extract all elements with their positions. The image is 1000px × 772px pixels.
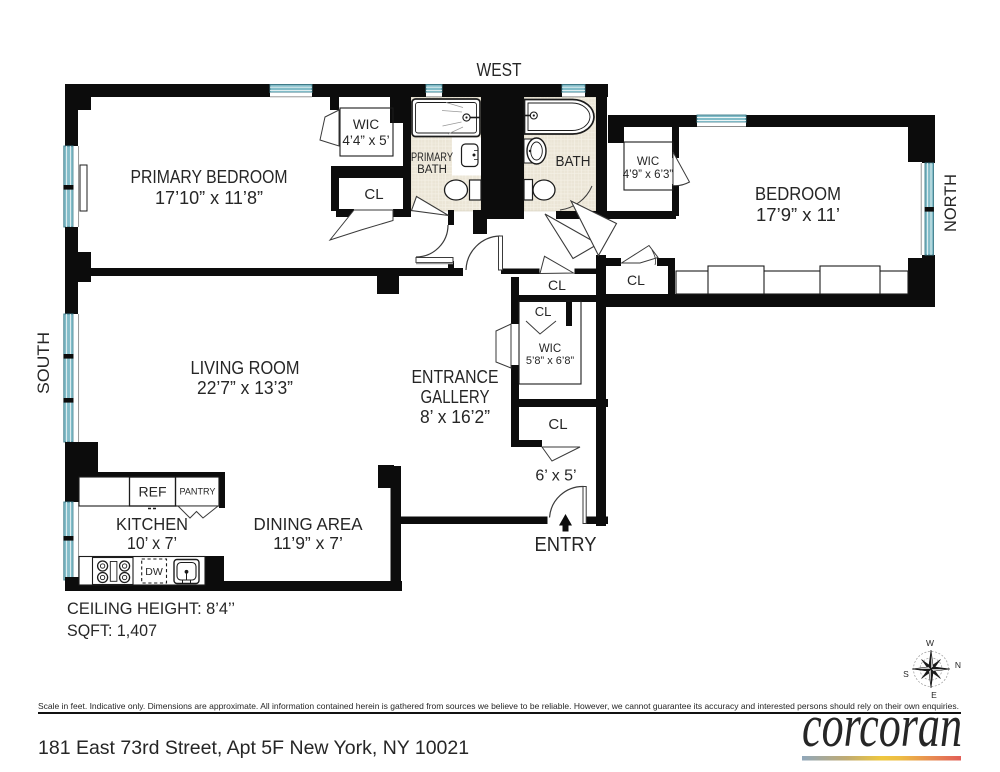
svg-text:4’9” x 6’3”: 4’9” x 6’3” (623, 169, 674, 181)
svg-text:PANTRY: PANTRY (180, 487, 217, 498)
svg-text:REF: REF (139, 484, 167, 500)
svg-text:4’4” x 5’: 4’4” x 5’ (342, 133, 389, 148)
svg-text:ENTRY: ENTRY (535, 534, 597, 556)
svg-text:DW: DW (145, 566, 163, 578)
svg-text:BATH: BATH (417, 164, 447, 176)
svg-text:WEST: WEST (477, 59, 522, 80)
svg-text:KITCHEN: KITCHEN (116, 514, 188, 534)
svg-text:8’ x 16’2”: 8’ x 16’2” (420, 406, 490, 427)
svg-text:10’ x 7’: 10’ x 7’ (127, 533, 177, 553)
svg-text:CL: CL (535, 304, 552, 319)
svg-text:WIC: WIC (539, 343, 561, 355)
svg-text:NORTH: NORTH (941, 174, 960, 232)
svg-text:5’8” x 6’8”: 5’8” x 6’8” (526, 355, 575, 367)
svg-text:6’ x 5’: 6’ x 5’ (535, 468, 576, 485)
svg-text:CL: CL (548, 416, 567, 433)
svg-text:BATH: BATH (556, 154, 591, 170)
svg-text:11’9” x 7’: 11’9” x 7’ (273, 533, 343, 553)
svg-text:CL: CL (548, 277, 566, 293)
svg-text:GALLERY: GALLERY (421, 386, 490, 407)
svg-text:PRIMARY: PRIMARY (411, 152, 453, 164)
svg-text:CEILING HEIGHT: 8’4’’: CEILING HEIGHT: 8’4’’ (67, 599, 235, 618)
svg-text:SQFT: 1,407: SQFT: 1,407 (67, 621, 157, 640)
svg-text:181 East 73rd Street, Apt 5F N: 181 East 73rd Street, Apt 5F New York, N… (38, 737, 469, 759)
svg-text:corcoran: corcoran (802, 693, 962, 759)
svg-text:17’9” x 11’: 17’9” x 11’ (756, 204, 840, 225)
svg-text:22’7” x 13’3”: 22’7” x 13’3” (197, 377, 293, 398)
svg-text:S: S (903, 669, 909, 679)
svg-text:CL: CL (364, 186, 383, 203)
svg-text:SOUTH: SOUTH (34, 332, 53, 394)
svg-text:CL: CL (627, 272, 645, 288)
svg-text:DINING AREA: DINING AREA (254, 514, 363, 534)
svg-text:BEDROOM: BEDROOM (755, 183, 841, 204)
svg-text:WIC: WIC (637, 156, 659, 168)
svg-text:PRIMARY BEDROOM: PRIMARY BEDROOM (131, 166, 288, 187)
svg-text:17’10” x 11’8”: 17’10” x 11’8” (155, 187, 263, 208)
svg-text:WIC: WIC (353, 117, 379, 132)
svg-text:N: N (955, 660, 961, 670)
svg-text:LIVING ROOM: LIVING ROOM (191, 357, 300, 378)
svg-text:ENTRANCE: ENTRANCE (412, 366, 499, 387)
svg-text:W: W (926, 638, 934, 648)
